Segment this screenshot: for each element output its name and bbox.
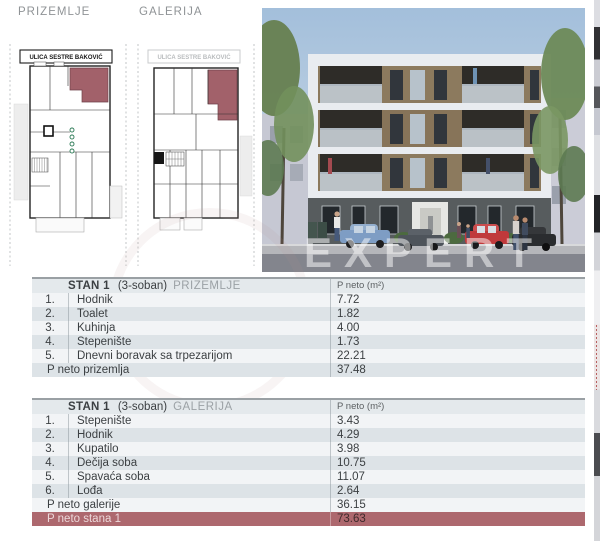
rooms-label: (3-soban) [118,280,167,292]
elevator-shaft [44,126,53,136]
summary-area: 37.48 [330,363,585,377]
room-name: Stepenište [68,335,330,349]
room-area: 11.07 [330,470,585,484]
area-column-header: P neto (m²) [330,279,585,293]
summary-area: 36.15 [330,498,585,512]
room-name: Dečija soba [68,456,330,470]
row-number: 2. [32,428,68,442]
unit-label: STAN 1 [68,401,110,413]
room-name: Hodnik [68,293,330,307]
table-row: 5.Spavaća soba11.07 [32,470,585,484]
table-row: 6.Lođa2.64 [32,484,585,498]
room-name: Spavaća soba [68,470,330,484]
row-number: 4. [32,456,68,470]
table-row: 3.Kupatilo3.98 [32,442,585,456]
summary-label: P neto stana 1 [32,512,330,526]
level-label: GALERIJA [173,401,233,413]
table-summary-row: P neto prizemlja37.48 [32,363,585,377]
area-table-galerija: STAN 1(3-soban)GALERIJAP neto (m²)1.Step… [32,398,585,526]
room-name: Kupatilo [68,442,330,456]
floorplan-prizemlje-drawing: ULICA SESTRE BAKOVIĆ [6,40,130,270]
room-area: 2.64 [330,484,585,498]
table-row: 3.Kuhinja4.00 [32,321,585,335]
summary-area: 73.63 [330,512,585,526]
row-number: 2. [32,307,68,321]
room-area: 4.00 [330,321,585,335]
hatched-area [14,104,28,200]
row-number: 5. [32,349,68,363]
street-label: ULICA SESTRE BAKOVIĆ [29,53,103,61]
room-name: Dnevni boravak sa trpezarijom [68,349,330,363]
table-row: 4.Dečija soba10.75 [32,456,585,470]
terrace-outline [160,218,202,230]
main-building [308,54,551,244]
room-name: Toalet [68,307,330,321]
table-summary-row: P neto galerije36.15 [32,498,585,512]
terrace-outline [36,218,84,232]
row-number: 1. [32,414,68,428]
table-header-row: STAN 1(3-soban)GALERIJAP neto (m²) [32,400,585,414]
summary-label: P neto galerije [32,498,330,512]
table-title: STAN 1(3-soban)PRIZEMLJE [32,279,330,293]
table-row: 5.Dnevni boravak sa trpezarijom22.21 [32,349,585,363]
table-total-row: P neto stana 173.63 [32,512,585,526]
row-number: 1. [32,293,68,307]
room-name: Kuhinja [68,321,330,335]
upper-floors [308,66,551,198]
room-area: 3.43 [330,414,585,428]
room-area: 22.21 [330,349,585,363]
watermark-expert: EXPERT [304,229,544,272]
elevator-shaft [154,152,164,164]
table-row: 2.Toalet1.82 [32,307,585,321]
adjacent-page-sliver [594,0,600,541]
unit-label: STAN 1 [68,280,110,292]
row-number: 4. [32,335,68,349]
table-row: 4.Stepenište1.73 [32,335,585,349]
summary-label: P neto prizemlja [32,363,330,377]
row-number: 6. [32,484,68,498]
plan-title-prizemlje: PRIZEMLJE [18,6,90,18]
room-area: 4.29 [330,428,585,442]
room-name: Hodnik [68,428,330,442]
person-on-balcony [473,70,477,82]
staircase [166,152,184,166]
level-label: PRIZEMLJE [173,280,241,292]
row-number: 5. [32,470,68,484]
area-table-prizemlje: STAN 1(3-soban)PRIZEMLJEP neto (m²)1.Hod… [32,277,585,377]
side-annex [110,186,122,218]
floorplan-galerija: ULICA SESTRE BAKOVIĆ [134,40,258,270]
table-row: 1.Stepenište3.43 [32,414,585,428]
floorplan-galerija-drawing: ULICA SESTRE BAKOVIĆ [134,40,258,270]
building-rendering: EXPERT [262,8,585,272]
table-row: 2.Hodnik4.29 [32,428,585,442]
street-label: ULICA SESTRE BAKOVIĆ [157,53,231,61]
room-area: 1.73 [330,335,585,349]
hatched-area [240,136,252,196]
room-area: 10.75 [330,456,585,470]
table-title: STAN 1(3-soban)GALERIJA [32,400,330,414]
table-row: 1.Hodnik7.72 [32,293,585,307]
room-name: Lođa [68,484,330,498]
area-column-header: P neto (m²) [330,400,585,414]
room-area: 7.72 [330,293,585,307]
plan-title-galerija: GALERIJA [139,6,203,18]
building-rendering-image: EXPERT [262,8,585,272]
room-area: 1.82 [330,307,585,321]
room-name: Stepenište [68,414,330,428]
floorplan-prizemlje: ULICA SESTRE BAKOVIĆ [6,40,130,270]
room-area: 3.98 [330,442,585,456]
row-number: 3. [32,442,68,456]
brochure-page: PRIZEMLJE GALERIJA ULICA SESTRE BAKOVIĆ [0,0,600,541]
row-number: 3. [32,321,68,335]
table-header-row: STAN 1(3-soban)PRIZEMLJEP neto (m²) [32,279,585,293]
rooms-label: (3-soban) [118,401,167,413]
